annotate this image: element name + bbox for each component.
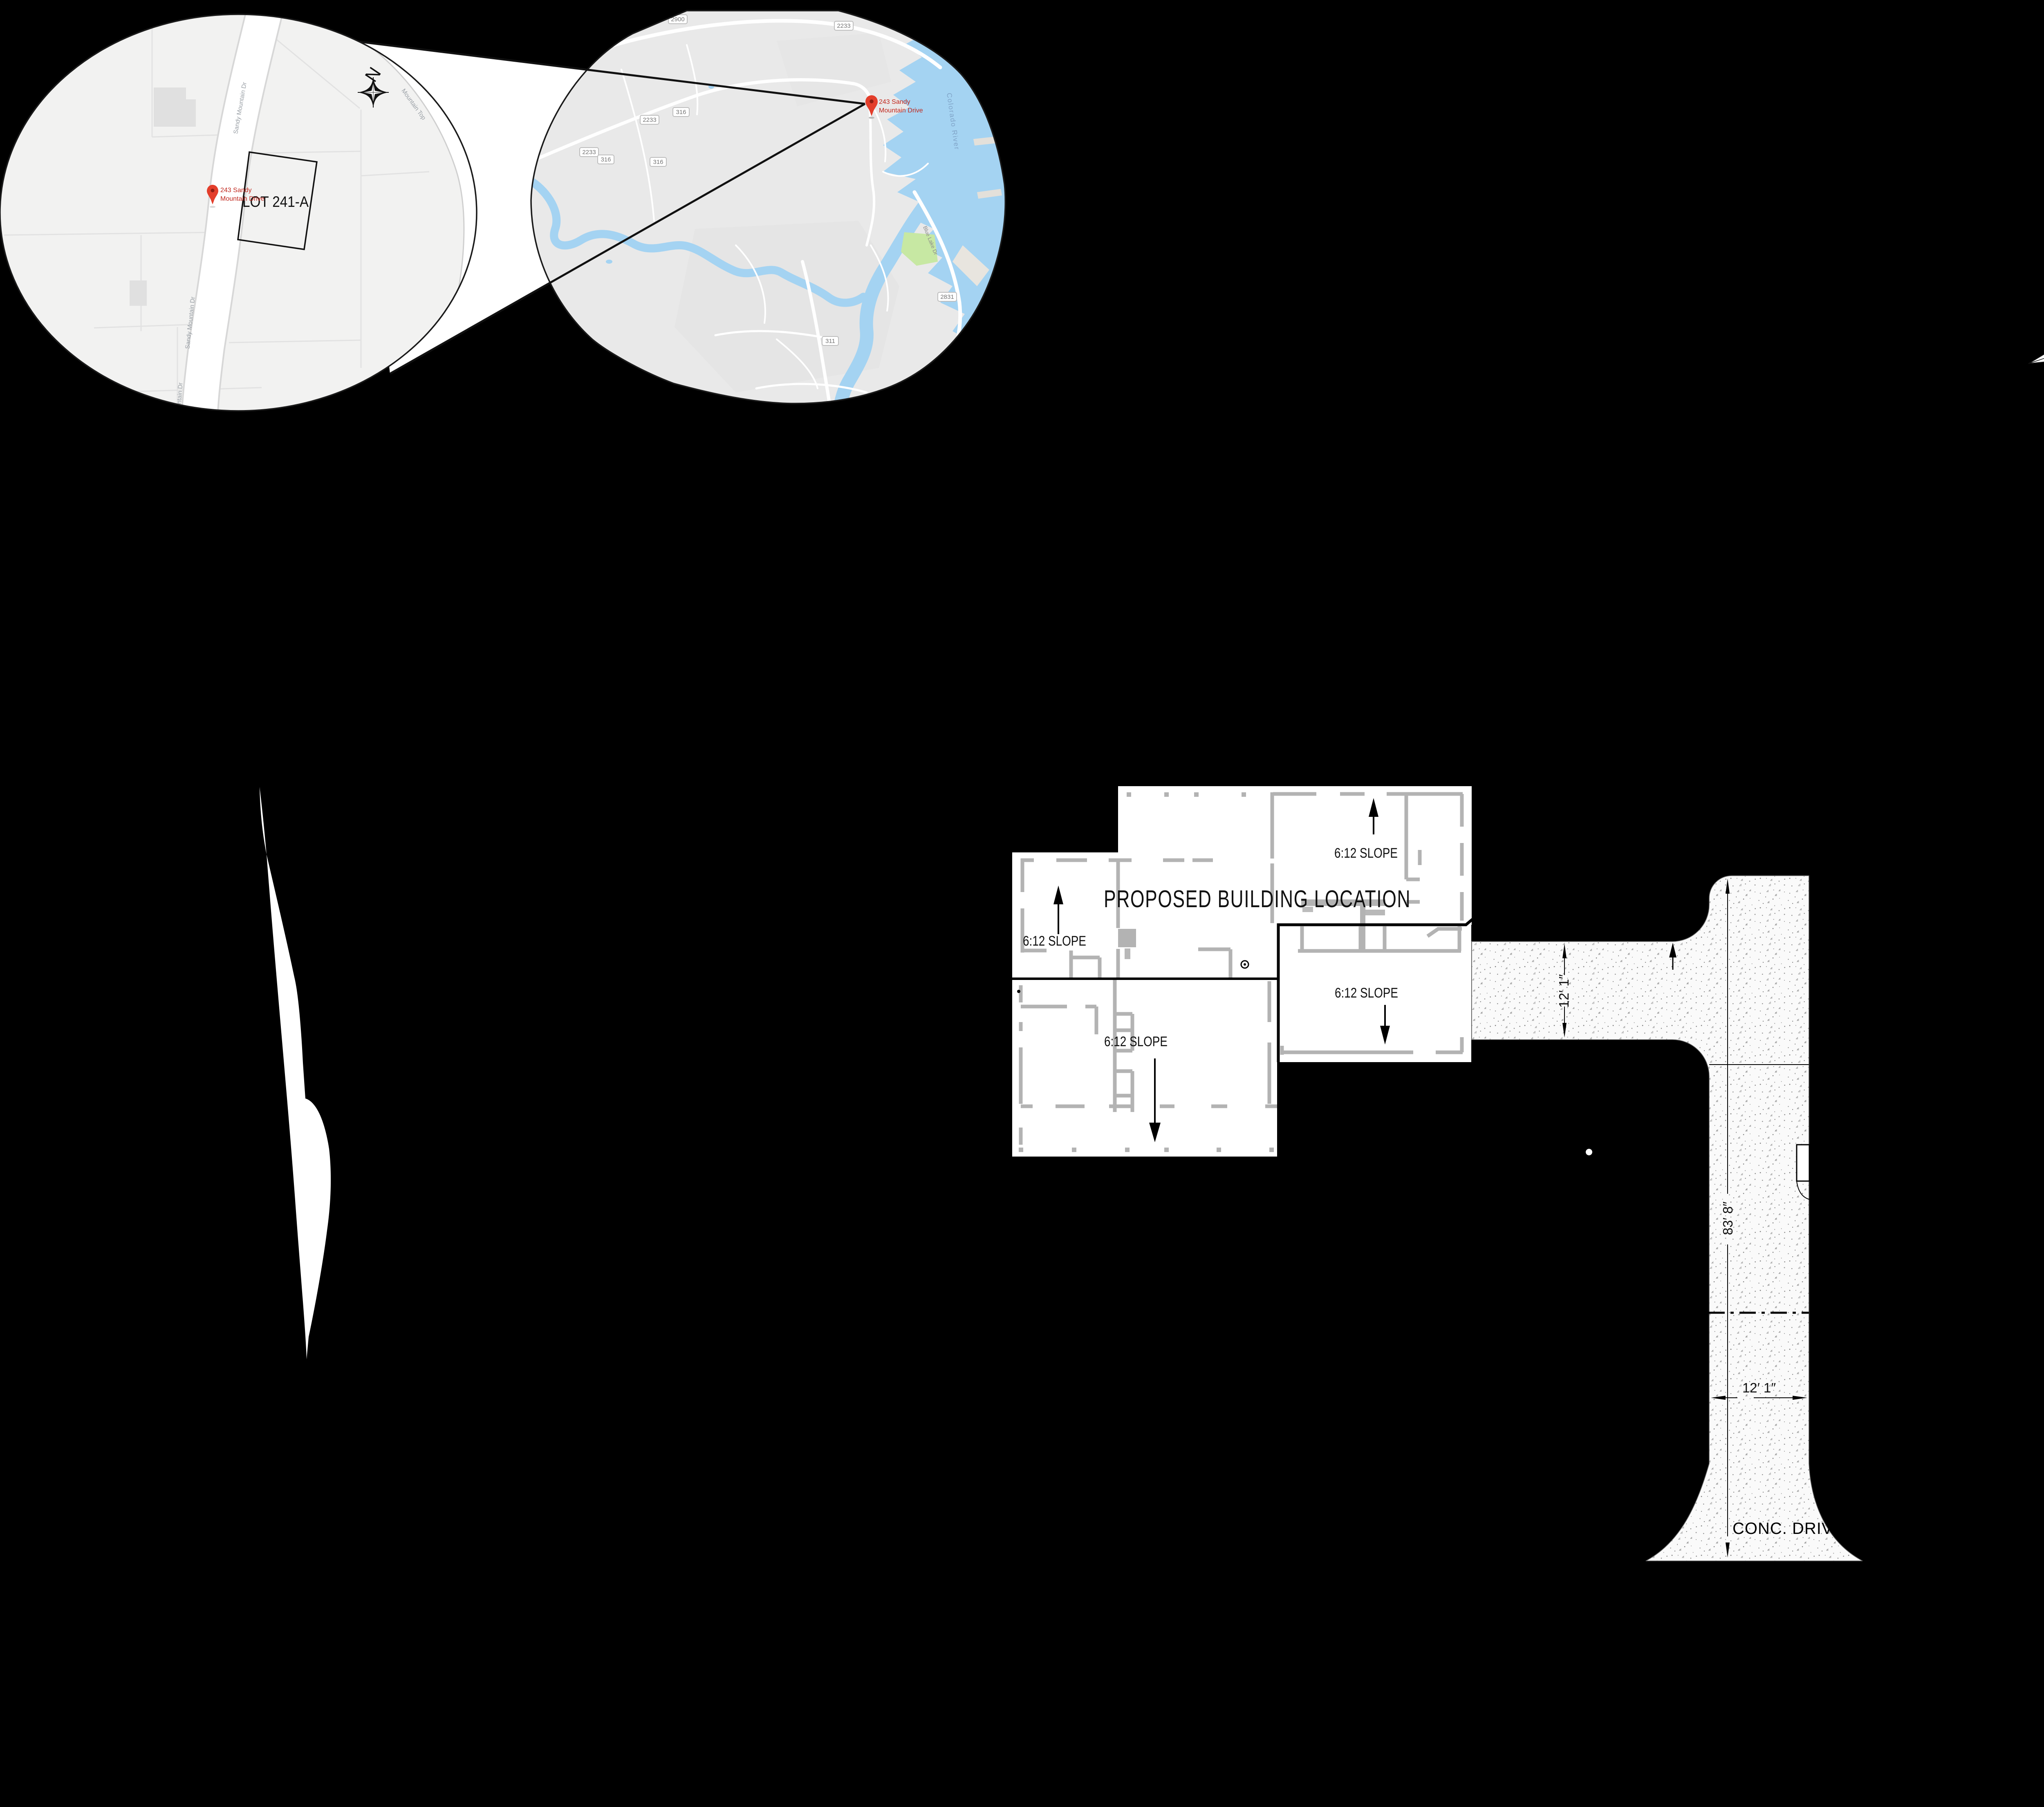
- svg-text:83′ 8″: 83′ 8″: [1720, 1202, 1735, 1235]
- svg-text:243 Sandy: 243 Sandy: [220, 187, 252, 194]
- svg-text:6:12 SLOPE: 6:12 SLOPE: [1023, 933, 1086, 949]
- svg-text:316: 316: [676, 109, 686, 116]
- svg-text:PROPOSED BUILDING LOCATION: PROPOSED BUILDING LOCATION: [1104, 886, 1411, 912]
- svg-text:CONC. DRIVEWAY: CONC. DRIVEWAY: [1732, 1520, 1881, 1538]
- svg-text:12′ 1″: 12′ 1″: [1742, 1380, 1776, 1395]
- svg-text:316: 316: [653, 159, 663, 166]
- svg-text:316: 316: [601, 156, 611, 163]
- svg-text:2831: 2831: [940, 294, 954, 300]
- svg-text:311: 311: [825, 338, 835, 345]
- svg-text:2233: 2233: [643, 117, 656, 123]
- svg-text:2233: 2233: [837, 22, 850, 29]
- svg-text:Mountain Drive: Mountain Drive: [879, 107, 923, 114]
- svg-text:12′ 1″: 12′ 1″: [1556, 974, 1571, 1008]
- svg-text:243 Sandy: 243 Sandy: [879, 99, 910, 105]
- svg-text:Mountain Drive: Mountain Drive: [220, 195, 264, 202]
- svg-text:6:12 SLOPE: 6:12 SLOPE: [1335, 985, 1398, 1001]
- svg-text:6:12 SLOPE: 6:12 SLOPE: [1104, 1034, 1168, 1049]
- svg-text:6:12 SLOPE: 6:12 SLOPE: [1334, 845, 1398, 861]
- svg-text:2233: 2233: [582, 149, 596, 156]
